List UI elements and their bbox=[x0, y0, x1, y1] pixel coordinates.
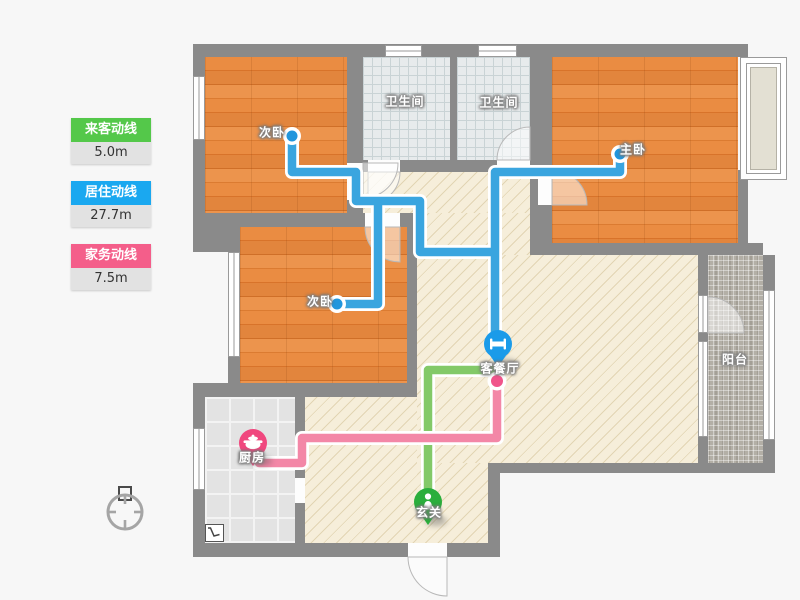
resident-route-line bbox=[283, 127, 629, 333]
legend-value: 27.7m bbox=[71, 205, 151, 227]
legend-value: 5.0m bbox=[71, 142, 151, 164]
resident-route-endpoints bbox=[283, 127, 629, 313]
door-arc-bathroom2 bbox=[497, 127, 530, 160]
route-legend: 来客动线 5.0m 居住动线 27.7m 家务动线 7.5m bbox=[71, 118, 151, 307]
compass-icon bbox=[108, 487, 142, 529]
legend-item-guest-route[interactable]: 来客动线 5.0m bbox=[71, 118, 151, 164]
room-label-balcony: 阳台 bbox=[722, 351, 748, 368]
housework-route-line bbox=[259, 372, 507, 464]
room-label-bedroom-mid-left: 次卧 bbox=[307, 293, 333, 310]
legend-item-housework-route[interactable]: 家务动线 7.5m bbox=[71, 244, 151, 290]
legend-value: 7.5m bbox=[71, 268, 151, 290]
room-label-bathroom-1: 卫生间 bbox=[385, 93, 424, 110]
floor-plan-stage: 次卧 卫生间 卫生间 主卧 次卧 客餐厅 厨房 玄关 阳台 来客动线 5.0m … bbox=[0, 0, 800, 600]
room-label-master-bedroom: 主卧 bbox=[620, 141, 646, 158]
room-label-kitchen: 厨房 bbox=[239, 449, 265, 466]
room-label-bedroom-top-left: 次卧 bbox=[259, 124, 285, 141]
legend-label: 居住动线 bbox=[71, 181, 151, 205]
legend-label: 来客动线 bbox=[71, 118, 151, 142]
legend-item-resident-route[interactable]: 居住动线 27.7m bbox=[71, 181, 151, 227]
kitchen-fixture-glyph bbox=[208, 528, 220, 536]
legend-label: 家务动线 bbox=[71, 244, 151, 268]
housework-route-endpoint bbox=[491, 375, 503, 387]
room-label-living-dining: 客餐厅 bbox=[480, 360, 519, 377]
door-arc-balcony bbox=[708, 297, 744, 333]
door-arc-entry bbox=[408, 557, 447, 596]
room-label-bathroom-2: 卫生间 bbox=[479, 94, 518, 111]
room-label-entry: 玄关 bbox=[416, 504, 442, 521]
